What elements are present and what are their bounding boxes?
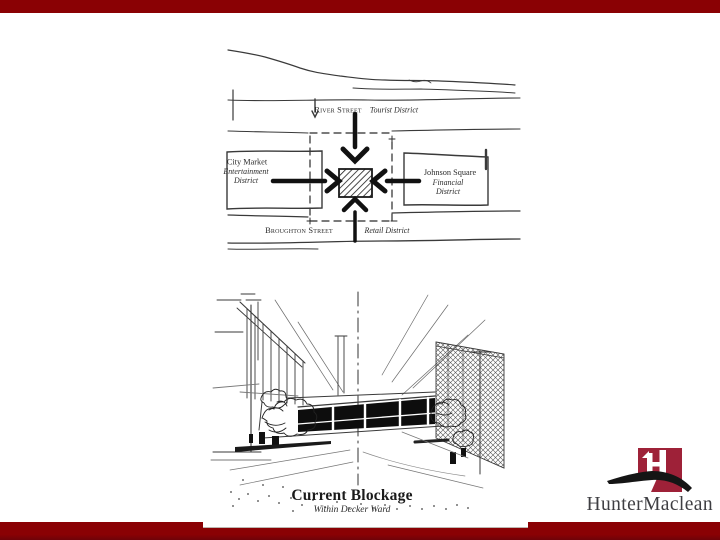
- broughton-street-label: Broughton Street: [265, 226, 333, 235]
- hunter-maclean-logo-icon: [596, 442, 706, 498]
- city-market-label: City Market: [227, 158, 268, 167]
- entertainment-label: Entertainment: [222, 167, 269, 176]
- district-map-diagram: River Street Tourist District City Marke…: [203, 38, 528, 273]
- johnson-square-label: Johnson Square: [424, 168, 477, 177]
- right-building: [436, 342, 504, 474]
- center-post: [335, 336, 347, 395]
- river-edge-lines: [228, 50, 515, 93]
- street-blockage-sketch: [203, 280, 528, 520]
- blocked-site-square: [339, 169, 372, 197]
- financial-label: Financial: [432, 178, 464, 187]
- retail-district-label: Retail District: [364, 226, 411, 235]
- east-district-label: District: [435, 187, 461, 196]
- top-red-bar: [0, 0, 720, 13]
- sketch-caption-subtitle: Within Decker Ward: [203, 505, 501, 515]
- sketch-caption-title: Current Blockage: [203, 487, 501, 505]
- slide-page: River Street Tourist District City Marke…: [203, 13, 528, 528]
- river-street-label: River Street: [314, 106, 362, 115]
- left-building: [211, 294, 305, 460]
- west-district-label: District: [233, 176, 259, 185]
- hunter-maclean-wordmark: HunterMaclean: [587, 494, 713, 516]
- tourist-district-label: Tourist District: [370, 106, 419, 115]
